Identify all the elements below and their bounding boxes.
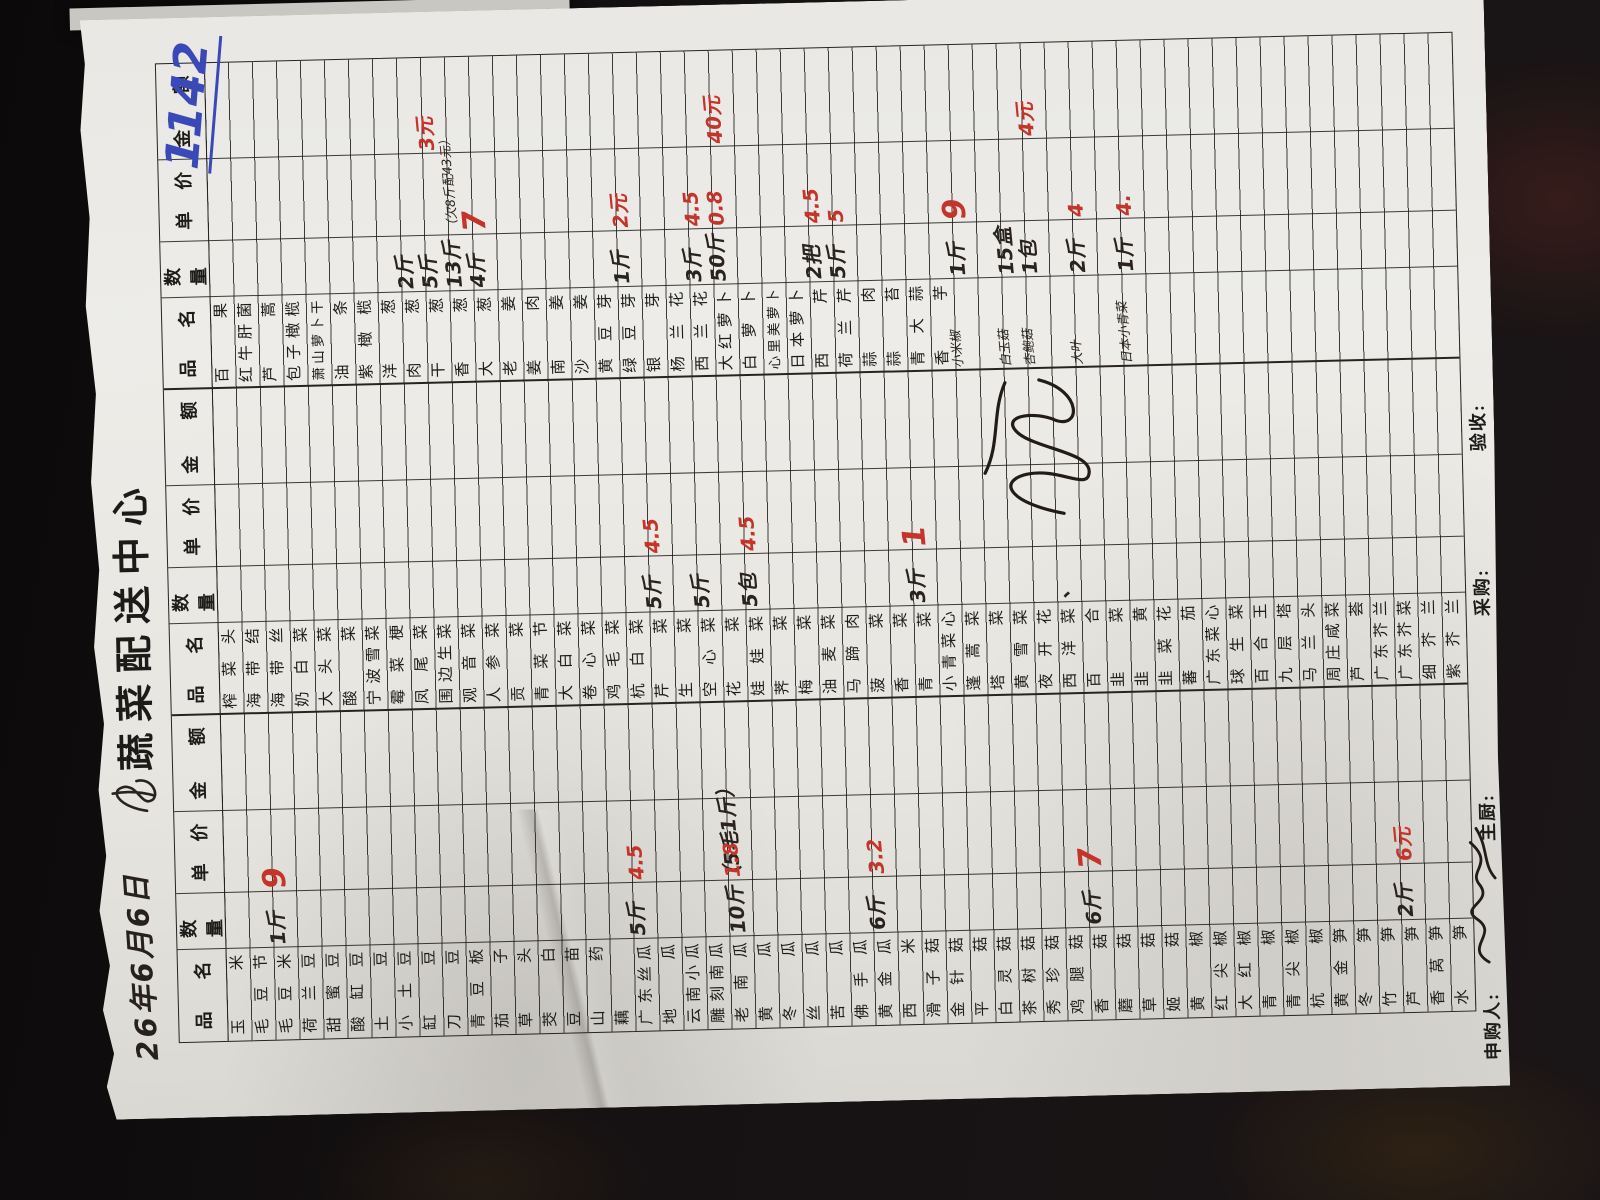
handwritten-entry: 5 xyxy=(825,208,846,224)
column-header-label: 金额 xyxy=(183,715,211,812)
item-name-cell: 酸菜 xyxy=(338,622,364,711)
handwritten-entry: 1斤 xyxy=(1113,237,1136,273)
item-name-cell: 芦蒿 xyxy=(258,297,284,386)
item-name-cell: 围边生菜 xyxy=(434,619,460,708)
handwritten-entry: 0.8 xyxy=(704,189,727,226)
item-name-cell: 油条 xyxy=(330,296,356,385)
column-header-label: 金额 xyxy=(175,389,203,486)
column-header-label: 数量 xyxy=(174,893,227,950)
item-name-cell: 青尖椒 xyxy=(1281,925,1307,1014)
item-name-cell: 周庄咸菜 xyxy=(1321,597,1347,686)
handwritten-entry: 4斤 xyxy=(465,253,488,289)
item-name-cell: 金针菇 xyxy=(945,933,971,1022)
column-header-amount: 金额 xyxy=(172,715,222,812)
item-name-cell: 平菇 xyxy=(969,932,995,1021)
item-name-cell: 黄椒 xyxy=(1185,927,1211,1016)
item-name-cell: 榨菜头 xyxy=(218,624,244,713)
item-name-cell: 青菜节 xyxy=(529,617,555,706)
order-table: 品名数量单价金额玉米毛豆节毛豆米荷兰豆甜蜜豆酸缸豆土豆小土豆缸豆刀豆青豆板茄子草… xyxy=(155,32,1477,1043)
item-name-cell: 茶树菇 xyxy=(1017,931,1043,1020)
table-row-gridlines xyxy=(204,33,1476,1041)
item-name-cell: 甜蜜豆 xyxy=(322,948,348,1037)
handwritten-date: 26年6月6日 xyxy=(113,871,168,1062)
item-name-cell: 蓬蒿菜 xyxy=(961,606,987,695)
column-header-label: 品名 xyxy=(181,623,209,716)
blue-total-number: 1142 xyxy=(154,32,222,174)
handwritten-entry: 4.5 xyxy=(680,190,703,227)
item-name-cell: 西芹 xyxy=(809,284,835,373)
item-name-cell: 娃娃菜 xyxy=(745,612,771,701)
column-header-qty: 数量 xyxy=(160,241,209,298)
item-name-cell: 荠菜 xyxy=(769,611,795,700)
column-header-label: 数量 xyxy=(166,567,219,624)
handwritten-entry: 13斤 xyxy=(441,240,465,290)
item-name-cell: 空心菜 xyxy=(697,613,723,702)
item-name-cell: 鸡毛菜 xyxy=(601,615,627,704)
item-name-cell: 宁波雪菜 xyxy=(362,621,388,710)
item-name-cell: 卷心菜 xyxy=(577,616,603,705)
item-name-cell: 冬笋 xyxy=(1353,923,1379,1012)
item-name-cell: 广东丝瓜 xyxy=(633,940,659,1029)
handwritten-entry: 3斤 xyxy=(905,568,928,604)
column-header-qty: 数量 xyxy=(168,567,217,624)
handwritten-entry: 1.8 xyxy=(720,841,743,878)
item-name-cell: 黄金笋 xyxy=(1329,923,1355,1012)
buyer-label: 采购: xyxy=(1468,568,1495,617)
item-name-cell: 雕刻南瓜 xyxy=(705,939,731,1028)
item-name-cell: 人参菜 xyxy=(482,618,508,707)
item-name-cell: 奶白菜 xyxy=(290,623,316,712)
item-name-cell: 杨兰花 xyxy=(665,287,691,376)
form-title: 蔬菜配送中心 xyxy=(99,477,161,772)
item-name-cell: 西兰花 xyxy=(689,287,715,376)
item-name-cell: 肉葱 xyxy=(402,294,428,383)
handwritten-entry: 3.2 xyxy=(864,838,887,875)
item-name-cell: 韭菜 xyxy=(1105,603,1131,692)
item-name-cell: 老南瓜 xyxy=(729,938,755,1027)
handwritten-entry: 2元 xyxy=(608,193,631,229)
item-name-cell: 小青菜心 xyxy=(937,607,963,696)
handwritten-entry: 2把 xyxy=(801,245,824,281)
handwritten-entry: 1斤 xyxy=(609,249,632,285)
item-name-cell: 大白菜 xyxy=(553,616,579,705)
handwritten-entry: 5包 xyxy=(737,572,760,608)
column-header-label: 单价 xyxy=(177,485,205,568)
handwritten-entry: 15盒 xyxy=(992,226,1016,276)
handwritten-entry: 2斤 xyxy=(1065,238,1088,274)
handwritten-entry: 40元 xyxy=(701,95,725,145)
handwritten-entry: 9 xyxy=(259,866,292,890)
item-name-cell: 蕃茄 xyxy=(1177,601,1203,690)
handwritten-entry: 2斤 xyxy=(393,255,416,291)
item-name-cell: 荷兰芹 xyxy=(833,283,859,372)
handwritten-entry: 5斤 xyxy=(689,573,712,609)
item-name-cell: 芦笋 xyxy=(1401,922,1427,1011)
item-name-cell: 紫芥兰 xyxy=(1441,595,1467,684)
item-name-cell: 滑子菇 xyxy=(921,933,947,1022)
handwritten-entry: 50斤 xyxy=(705,233,729,283)
item-name-cell: 豆苗 xyxy=(561,942,587,1031)
item-name-cell: 茄子 xyxy=(489,944,515,1033)
handwritten-entry: 1包 xyxy=(1017,239,1040,275)
item-name-cell: 鸡腿菇 xyxy=(1065,930,1091,1019)
item-name-cell: 凤尾菜 xyxy=(410,620,436,709)
item-name-cell: 马兰头 xyxy=(1297,598,1323,687)
item-name-cell: 青椒 xyxy=(1257,925,1283,1014)
requester-signature xyxy=(1452,818,1508,969)
item-name-cell: 草头 xyxy=(513,943,539,1032)
column-header-amount: 金额 xyxy=(164,389,214,486)
item-name-cell: 球生菜 xyxy=(1225,600,1251,689)
item-name-cell: 云南小瓜 xyxy=(681,939,707,1028)
item-name-cell: 酸缸豆 xyxy=(346,947,372,1036)
column-header-label: 品名 xyxy=(173,297,201,390)
handwritten-entry: 1斤 xyxy=(265,910,288,946)
item-name-cell: 百果 xyxy=(210,299,236,388)
item-name-cell: 红尖椒 xyxy=(1209,926,1235,1015)
handwritten-entry: 1斤 xyxy=(945,241,968,277)
item-name-cell: 佛手瓜 xyxy=(849,935,875,1024)
handwritten-entry: 2斤 xyxy=(1393,882,1416,918)
item-name-cell: 萧山萝卜干 xyxy=(306,296,332,385)
handwritten-entry: 4.5 xyxy=(736,515,759,552)
item-name-cell: 杭椒 xyxy=(1305,924,1331,1013)
handwritten-entry: 6斤 xyxy=(865,895,888,931)
item-name-cell: 刀豆 xyxy=(441,945,467,1034)
item-name-cell: 沙姜 xyxy=(570,290,596,379)
item-name-cell: 土豆 xyxy=(370,947,396,1036)
item-name-cell: 西米 xyxy=(897,934,923,1023)
item-name-cell: 白灵菇 xyxy=(993,932,1019,1021)
item-name-cell: 黄金瓜 xyxy=(873,935,899,1024)
item-name-cell: 大红萝卜 xyxy=(713,286,739,375)
column-header-label: 单价 xyxy=(185,811,213,894)
item-name-cell: 毛豆节 xyxy=(250,950,276,1039)
column-header-label: 品名 xyxy=(189,949,217,1042)
handwritten-entry: 3斤 xyxy=(681,248,704,284)
item-name-cell: 丝瓜 xyxy=(801,936,827,1025)
item-name-cell: 黄瓜 xyxy=(753,937,779,1026)
item-name-cell: 韭黄 xyxy=(1129,602,1155,691)
item-name-cell: 大红椒 xyxy=(1233,926,1259,1015)
item-name-cell: 海带丝 xyxy=(266,623,292,712)
item-name-cell: 茭白 xyxy=(537,943,563,1032)
handwritten-entry: 、 xyxy=(1050,579,1072,601)
item-name-cell: 黄雪菜 xyxy=(1009,605,1035,694)
handwritten-entry: 4. xyxy=(1113,193,1135,216)
item-name-cell: 塔菜 xyxy=(985,606,1011,695)
handwritten-entry: 4.5 xyxy=(800,187,823,224)
item-name-cell: 香菜 xyxy=(889,608,915,697)
item-name-cell: 洋葱 xyxy=(378,294,404,383)
item-name-cell: 贡菜 xyxy=(506,617,532,706)
item-name-cell: 苦瓜 xyxy=(825,936,851,1025)
item-name-cell: 姬菇 xyxy=(1161,928,1187,1017)
item-name-cell: 芹菜 xyxy=(649,614,675,703)
item-name-cell: 广东菜心 xyxy=(1201,600,1227,689)
handwritten-entry: 6斤 xyxy=(1081,890,1104,926)
item-name-cell: 山药 xyxy=(585,942,611,1031)
item-name-cell: 包子橄榄 xyxy=(282,297,308,386)
item-name-cell: 小土豆 xyxy=(394,946,420,1035)
item-name-cell: 黄豆芽 xyxy=(594,289,620,378)
item-name-cell: 香莴笋 xyxy=(1425,921,1451,1010)
item-name-cell: 干葱 xyxy=(426,293,452,382)
item-name-cell: 广东芥菜 xyxy=(1393,596,1419,685)
item-name-cell: 缸豆 xyxy=(417,946,443,1035)
requester-label: 申购人: xyxy=(1478,992,1506,1061)
handwritten-entry: 4.5 xyxy=(640,517,663,554)
item-name-cell: 青菜 xyxy=(913,607,939,696)
handwritten-entry: 小米椒 xyxy=(949,330,965,369)
item-name-cell: 紫橄榄 xyxy=(354,295,380,384)
item-name-cell: 夜开花 xyxy=(1033,605,1059,694)
handwritten-entry: 4 xyxy=(1065,202,1086,218)
item-name-cell: 秀珍菇 xyxy=(1041,930,1067,1019)
handwritten-entry: 7 xyxy=(1075,846,1108,870)
item-name-cell: 姜肉 xyxy=(522,291,548,380)
receiver-label: 验收: xyxy=(1464,403,1491,452)
item-name-cell: 百合王 xyxy=(1249,599,1275,688)
item-name-cell: 红牛肝菌 xyxy=(234,298,260,387)
handwritten-entry: 4元 xyxy=(1014,101,1037,137)
item-name-cell: 银芽 xyxy=(641,288,667,377)
item-name-cell: 马蹄肉 xyxy=(841,609,867,698)
item-name-cell: 生菜 xyxy=(673,613,699,702)
item-name-cell: 梅菜 xyxy=(793,610,819,699)
item-name-cell: 韭菜花 xyxy=(1153,602,1179,691)
handwritten-entry: 5斤 xyxy=(417,254,440,290)
column-header-price: 单价 xyxy=(174,811,224,894)
handwritten-entry: 5斤 xyxy=(825,244,848,280)
handwritten-entry: 7 xyxy=(459,209,492,233)
item-name-cell: 西洋菜 xyxy=(1057,604,1083,693)
column-header-price: 单价 xyxy=(166,485,216,568)
item-name-cell: 九层塔 xyxy=(1273,599,1299,688)
handwritten-entry: 1 xyxy=(899,524,932,548)
item-name-cell: 藕 xyxy=(609,941,635,1030)
item-name-cell: 蒜苔 xyxy=(881,282,907,371)
item-name-cell: 白萝卜 xyxy=(737,286,763,375)
item-name-cell: 日本萝卜 xyxy=(785,284,811,373)
approval-signature xyxy=(964,345,1108,533)
item-name-cell: 南姜 xyxy=(546,290,572,379)
item-name-cell: 青大蒜 xyxy=(905,282,931,371)
item-name-cell: 花菜 xyxy=(721,612,747,701)
item-name-cell: 细芥兰 xyxy=(1417,595,1443,684)
item-name-cell: 冬瓜 xyxy=(777,937,803,1026)
item-name-cell: 海带结 xyxy=(242,624,268,713)
paper-rotated-wrapper: 26年6月6日 蔬菜配送中心 1142 品名数量单价金额玉米毛豆节毛豆米荷兰豆甜… xyxy=(74,0,1510,1120)
item-name-cell: 菠菜 xyxy=(865,609,891,698)
column-header-qty: 数量 xyxy=(176,893,225,950)
item-name-cell: 地瓜 xyxy=(657,940,683,1029)
item-name-cell: 芦荟 xyxy=(1345,597,1371,686)
item-name-cell: 竹笋 xyxy=(1377,922,1403,1011)
item-name-cell: 青豆板 xyxy=(465,945,491,1034)
item-name-cell: 玉米 xyxy=(226,950,252,1039)
handwritten-entry: 3元 xyxy=(414,116,437,152)
item-name-cell: 草菇 xyxy=(1137,928,1163,1017)
column-header-name: 品名 xyxy=(170,623,220,716)
column-header-label: 数量 xyxy=(158,241,211,298)
item-name-cell: 百合 xyxy=(1081,603,1107,692)
item-name-cell: 油麦菜 xyxy=(817,610,843,699)
item-name-cell: 广东芥兰 xyxy=(1369,596,1395,685)
item-name-cell: 香葱 xyxy=(450,293,476,382)
item-name-cell: 心里美萝卜 xyxy=(761,285,787,374)
item-name-cell: 香菇 xyxy=(1089,929,1115,1018)
item-name-cell: 蒜肉 xyxy=(857,283,883,372)
item-name-cell: 杭白菜 xyxy=(625,615,651,704)
item-name-cell: 观音菜 xyxy=(458,619,484,708)
handwritten-entry: 6元 xyxy=(1392,826,1415,862)
order-form-paper: 26年6月6日 蔬菜配送中心 1142 品名数量单价金额玉米毛豆节毛豆米荷兰豆甜… xyxy=(74,0,1510,1120)
item-name-cell: 蘑菇 xyxy=(1113,929,1139,1018)
item-name-cell: 毛豆米 xyxy=(274,949,300,1038)
item-name-cell: 霉菜梗 xyxy=(386,620,412,709)
item-name-cell: 荷兰豆 xyxy=(298,949,324,1038)
handwritten-entry: 9 xyxy=(939,197,972,221)
column-header-name: 品名 xyxy=(162,297,212,390)
handwritten-entry: 4.5 xyxy=(624,844,647,881)
item-name-cell: 绿豆芽 xyxy=(618,289,644,378)
item-name-cell: 大葱 xyxy=(474,292,500,381)
item-name-cell: 老姜 xyxy=(498,292,524,381)
handwritten-check-mark xyxy=(100,770,163,823)
handwritten-entry: 5斤 xyxy=(625,901,648,937)
item-name-cell: 大头菜 xyxy=(314,622,340,711)
column-header-name: 品名 xyxy=(178,949,228,1042)
handwritten-entry: 5斤 xyxy=(641,575,664,611)
